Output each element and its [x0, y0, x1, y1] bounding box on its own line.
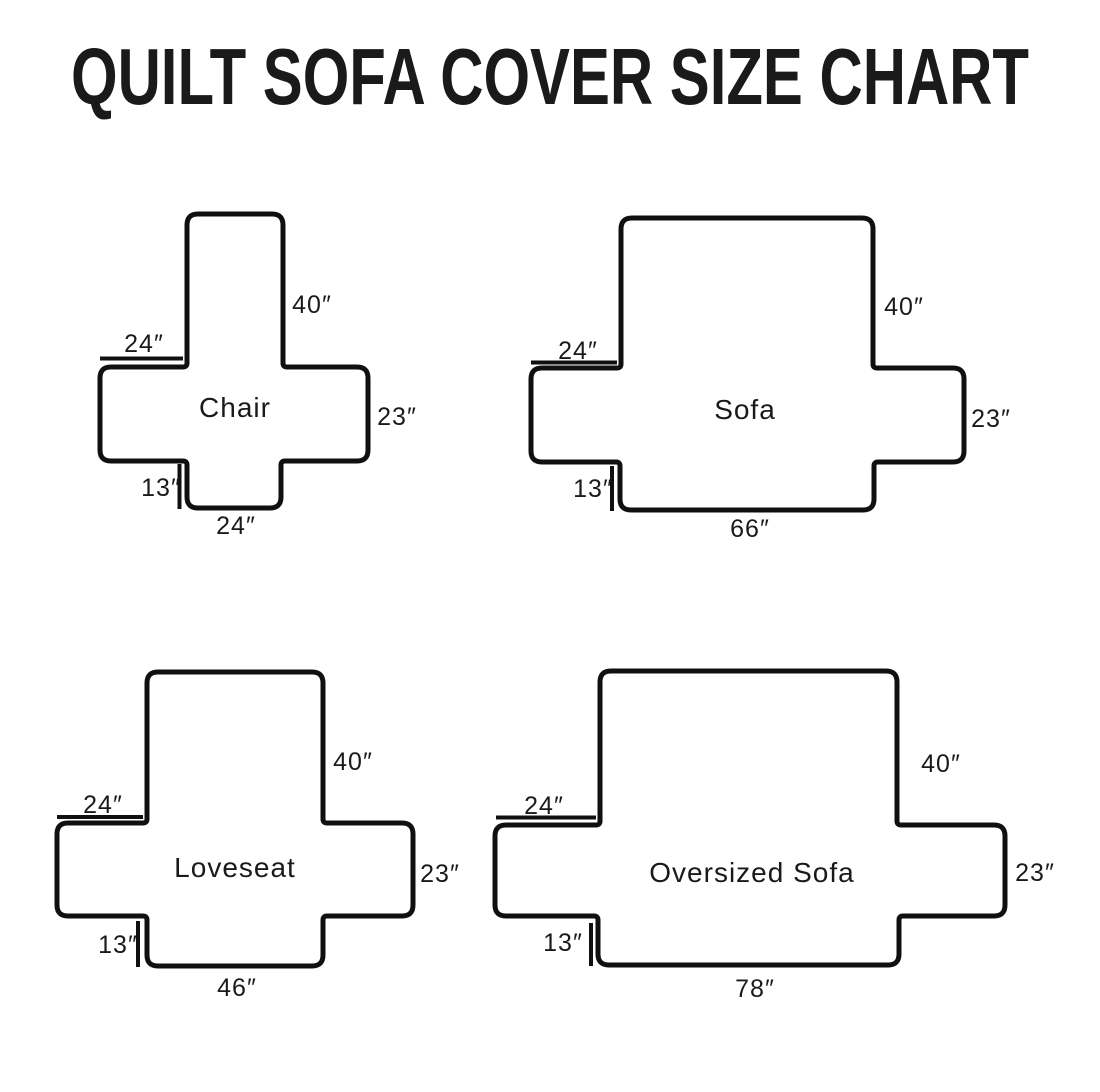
loveseat-skirt-height-label: 13″ [98, 931, 138, 959]
loveseat-name-label: Loveseat [174, 852, 296, 883]
chair-name-label: Chair [199, 392, 271, 423]
loveseat-arm-width-label: 24″ [83, 791, 123, 819]
chair-skirt-height-label: 13″ [141, 474, 181, 502]
oversized-sofa-skirt-height-label: 13″ [543, 929, 583, 957]
loveseat-side-height-label: 23″ [420, 860, 460, 888]
oversized-sofa-diagram: 40″ 24″ Oversized Sofa 23″ 13″ 78″ [495, 671, 1055, 1003]
chair-diagram: 40″ 24″ Chair 23″ 13″ 24″ [100, 214, 417, 540]
chair-arm-width-label: 24″ [124, 330, 164, 358]
page-title: QUILT SOFA COVER SIZE CHART [71, 32, 1029, 121]
sofa-arm-width-label: 24″ [558, 337, 598, 365]
sofa-back-height-label: 40″ [884, 293, 924, 321]
chair-back-height-label: 40″ [292, 291, 332, 319]
sofa-diagram: 40″ 24″ Sofa 23″ 13″ 66″ [531, 218, 1011, 543]
oversized-sofa-back-height-label: 40″ [921, 750, 961, 778]
oversized-sofa-arm-width-label: 24″ [524, 792, 564, 820]
chair-shape [100, 214, 368, 508]
sofa-skirt-height-label: 13″ [573, 475, 613, 503]
sofa-side-height-label: 23″ [971, 405, 1011, 433]
size-chart-page: QUILT SOFA COVER SIZE CHART 40″ 24″ Chai… [0, 0, 1100, 1092]
oversized-sofa-side-height-label: 23″ [1015, 859, 1055, 887]
loveseat-back-height-label: 40″ [333, 748, 373, 776]
loveseat-bottom-width-label: 46″ [217, 974, 257, 1002]
chair-side-height-label: 23″ [377, 403, 417, 431]
chair-bottom-width-label: 24″ [216, 512, 256, 540]
loveseat-diagram: 40″ 24″ Loveseat 23″ 13″ 46″ [57, 672, 460, 1002]
oversized-sofa-bottom-width-label: 78″ [735, 975, 775, 1003]
size-chart-canvas: QUILT SOFA COVER SIZE CHART 40″ 24″ Chai… [0, 0, 1100, 1092]
sofa-name-label: Sofa [714, 394, 776, 425]
oversized-sofa-name-label: Oversized Sofa [649, 857, 854, 888]
sofa-bottom-width-label: 66″ [730, 515, 770, 543]
